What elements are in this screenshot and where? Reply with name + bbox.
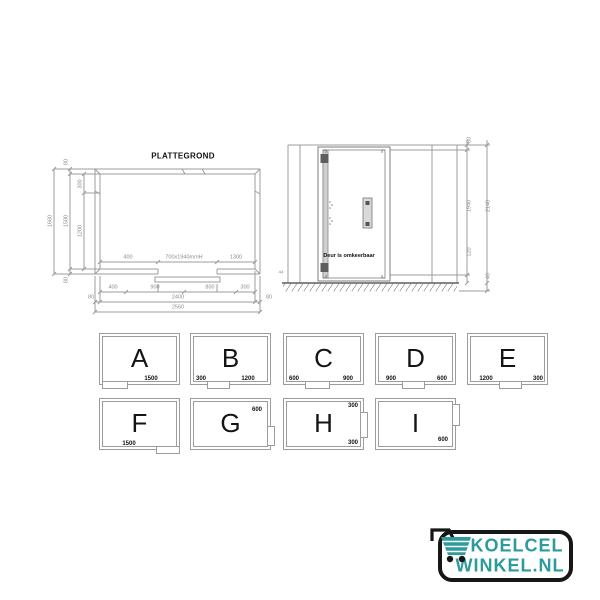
option-dim: 600 <box>289 376 299 382</box>
plan-title: PLATTEGROND <box>151 152 215 161</box>
dim-label: 1500 <box>64 215 70 227</box>
option-box-b: B 300 1200 <box>190 333 271 385</box>
option-box-f: F 1500 <box>99 398 180 450</box>
option-box-d: D 900 600 <box>375 333 456 385</box>
option-letter: D <box>406 345 425 371</box>
option-letter: H <box>314 410 333 436</box>
option-letter: E <box>499 345 516 371</box>
option-box-g: G 600 <box>190 398 271 450</box>
option-letter: I <box>412 410 419 436</box>
option-dim: 600 <box>437 376 447 382</box>
koelcelwinkel-logo: KOELCEL WINKEL.NL <box>427 524 593 590</box>
option-dim: 300 <box>348 403 358 409</box>
option-dim: 1200 <box>479 376 492 382</box>
option-dim: 1500 <box>144 376 157 382</box>
door-position-marker <box>499 381 522 389</box>
option-letter: G <box>220 410 240 436</box>
option-dim: 600 <box>438 437 448 443</box>
option-dim: 300 <box>196 376 206 382</box>
reference-mark: 44 <box>278 270 283 275</box>
option-dim: 300 <box>533 376 543 382</box>
ground-hatch <box>283 284 457 292</box>
door-position-marker <box>452 404 460 426</box>
dim-label: 900 <box>150 285 159 291</box>
option-box-e: E 1200 300 <box>467 333 548 385</box>
option-box-a: A 1500 <box>99 333 180 385</box>
dim-label: 80 <box>64 277 70 283</box>
option-dim: 1500 <box>122 441 135 447</box>
dim-label: 1300 <box>230 255 242 261</box>
dim-label: 80 <box>467 137 473 143</box>
plan-door-leaf <box>155 277 220 282</box>
option-letter: F <box>132 410 148 436</box>
option-letter: C <box>314 345 333 371</box>
door-position-marker <box>207 381 230 389</box>
door-position-marker <box>156 446 180 454</box>
door-position-marker <box>267 426 275 446</box>
dim-label: 80 <box>266 295 272 301</box>
dim-label: 2400 <box>172 295 184 301</box>
dim-label: 1660 <box>48 215 54 227</box>
option-dim: 900 <box>343 376 353 382</box>
door-position-marker <box>402 381 425 389</box>
dim-label: 300 <box>240 285 249 291</box>
option-dim: 1200 <box>241 376 254 382</box>
door-hinge-top <box>321 154 329 163</box>
dim-label: 300 <box>78 179 84 188</box>
door-position-marker <box>360 412 368 438</box>
dim-label: 40 <box>486 273 492 279</box>
door-position-marker <box>102 381 128 389</box>
option-letter: B <box>222 345 239 371</box>
dim-label: 2140 <box>486 200 492 212</box>
option-dim: 300 <box>348 440 358 446</box>
dim-label: 80 <box>64 159 70 165</box>
drawing-sheet: PLATTEGROND 1660 80 1500 80 300 1200 400… <box>0 0 600 600</box>
dim-label: 1940 <box>467 200 473 212</box>
door-reversible-note: Deur is omkeerbaar <box>323 253 374 259</box>
option-box-c: C 600 900 <box>283 333 364 385</box>
option-dim: 600 <box>252 407 262 413</box>
dim-label: 2560 <box>172 305 184 311</box>
door-size-label: 700x1940mmH <box>165 255 202 261</box>
door-hinge-bottom <box>321 263 329 272</box>
shopping-cart-icon <box>427 524 487 568</box>
dim-label: 400 <box>123 255 132 261</box>
option-dim: 900 <box>386 376 396 382</box>
option-letter: A <box>131 345 148 371</box>
dim-label: 120 <box>467 247 473 256</box>
option-box-h: H 300 300 <box>283 398 364 450</box>
option-box-i: I 600 <box>375 398 456 450</box>
dim-label: 400 <box>108 285 117 291</box>
dim-label: 1200 <box>78 225 84 237</box>
dim-label: 80 <box>88 295 94 301</box>
dim-label: 800 <box>205 285 214 291</box>
door-position-marker <box>305 381 330 389</box>
